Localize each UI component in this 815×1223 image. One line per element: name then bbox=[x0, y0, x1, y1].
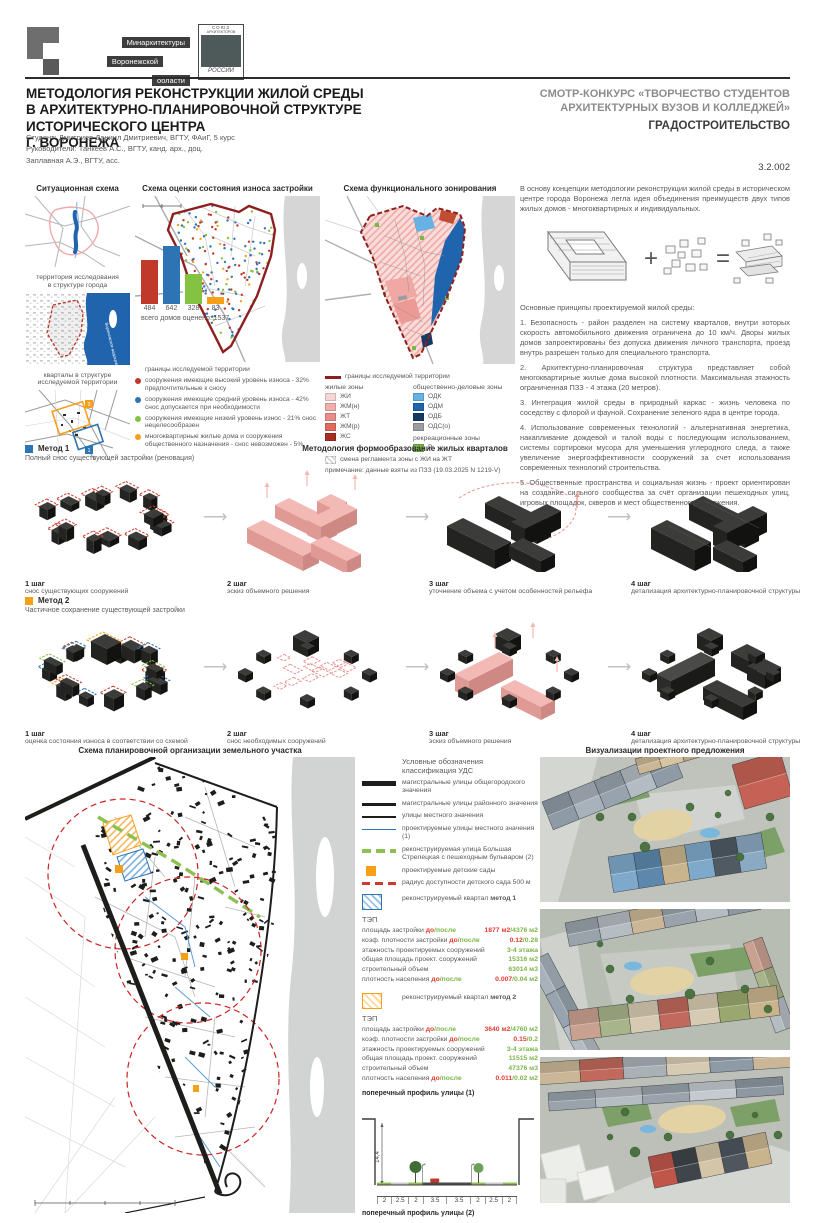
tep2-header: ТЭП bbox=[362, 1014, 538, 1023]
bar-labels: 48464232883 bbox=[141, 305, 241, 312]
tep-row: площадь застройки до/после 3640 м2/4760 … bbox=[362, 1025, 538, 1035]
step-arrow-icon: ⟶ bbox=[203, 657, 227, 677]
category-label: ГРАДОСТРОИТЕЛЬСТВО bbox=[460, 119, 790, 133]
competition-board: Минархитектуры Воронежской области СОЮЗ … bbox=[0, 0, 815, 1223]
step-diagram bbox=[429, 618, 599, 722]
step-number: 1 шаг bbox=[25, 729, 203, 738]
dimension-value: 3.5 bbox=[424, 1197, 448, 1204]
union-logo-line: АРХИТЕКТОРОВ bbox=[199, 30, 243, 34]
step-arrow-icon: ⟶ bbox=[405, 507, 429, 527]
method-step: 4 шаг детализация архитектурно-планирово… bbox=[631, 618, 809, 746]
dimension-value: 2 bbox=[377, 1197, 392, 1204]
tep-row: плотность населения до/после 0.011/0.02 … bbox=[362, 1074, 538, 1084]
title-line: В АРХИТЕКТУРНО-ПЛАНИРОВОЧНОЙ СТРУКТУРЕ И… bbox=[26, 102, 486, 135]
zone-swatch-icon bbox=[325, 393, 336, 401]
step-number: 2 шаг bbox=[227, 729, 405, 738]
step-arrow-icon: ⟶ bbox=[405, 657, 429, 677]
zone-item: ОДС(о) bbox=[413, 423, 465, 431]
tep-after-value: /4760 м2 bbox=[510, 1026, 538, 1033]
situational-column: Ситуационная схема территория исследован… bbox=[25, 184, 130, 465]
uds-text: магистральные улицы общегородского значе… bbox=[402, 779, 538, 796]
dimension-value: 2.5 bbox=[392, 1197, 409, 1204]
tep-after-value: /0.2 bbox=[527, 1036, 538, 1043]
step-diagram bbox=[631, 618, 801, 722]
tep-label: строительный объем bbox=[362, 1065, 428, 1072]
wear-bar-chart: 48464232883 всего домов оценено: 1537 bbox=[141, 244, 241, 322]
ministry-logo-text: Минархитектуры Воронежской области bbox=[80, 32, 190, 88]
union-logo-line: РОССИИ bbox=[199, 68, 243, 74]
uds-items: магистральные улицы общегородского значе… bbox=[362, 779, 538, 888]
siteplan-map-wrap bbox=[25, 757, 355, 1218]
tep-before-word: до bbox=[426, 927, 434, 934]
uds-swatch-icon bbox=[362, 848, 396, 854]
dimension-value: 2 bbox=[409, 1197, 423, 1204]
uds-text: проектируемые детские сады bbox=[402, 867, 495, 875]
tep-row: коэф. плотности застройки до/после 0.12/… bbox=[362, 936, 538, 946]
step-caption: эскиз объемного решения bbox=[227, 588, 405, 596]
architects-union-logo: СОЮЗ АРХИТЕКТОРОВ РОССИИ bbox=[198, 24, 244, 80]
tep-before-word: до bbox=[431, 976, 439, 983]
tep-row: этажность проектируемых сооружений 3-4 э… bbox=[362, 946, 538, 956]
step-caption: уточнение объема с учетом особенностей р… bbox=[429, 588, 607, 596]
tep-row: строительный объем 63014 м3 bbox=[362, 965, 538, 975]
method-step: 2 шаг снос необходимых сооружений bbox=[227, 618, 405, 746]
street-profile-2: 14,4 bbox=[362, 1219, 534, 1223]
tep-label: этажность проектируемых сооружений bbox=[362, 1046, 485, 1053]
tep-before-word: до bbox=[431, 1075, 439, 1082]
method1-square-icon bbox=[25, 445, 33, 453]
quarter1-item: реконструируемый квартал метод 1 bbox=[362, 892, 538, 910]
tep2-table: площадь застройки до/после 3640 м2/4760 … bbox=[362, 1025, 538, 1084]
situational-title: Ситуационная схема bbox=[25, 184, 130, 193]
method1-label: Метод 1 bbox=[38, 444, 69, 453]
method-step: 3 шаг уточнение объема с учетом особенно… bbox=[429, 468, 607, 596]
tep-after-word: /после bbox=[434, 1026, 456, 1033]
svg-text:14,4: 14,4 bbox=[375, 1150, 381, 1162]
tep-after-value: 3-4 этажа bbox=[507, 947, 538, 954]
tep-after-value: /0.04 м2 bbox=[512, 976, 538, 983]
author-line: Руководители: Танкеев А.С., ВГТУ, канд. … bbox=[26, 143, 426, 154]
tep-label: этажность проектируемых сооружений bbox=[362, 947, 485, 954]
tep-label: коэф. плотности застройки bbox=[362, 1036, 449, 1043]
title-line: МЕТОДОЛОГИЯ РЕКОНСТРУКЦИИ ЖИЛОЙ СРЕДЫ bbox=[26, 86, 486, 102]
competition-line: АРХИТЕКТУРНЫХ ВУЗОВ И КОЛЛЕДЖЕЙ» bbox=[460, 102, 790, 116]
uds-text: улицы местного значения bbox=[402, 812, 483, 820]
entry-code: 3.2.002 bbox=[758, 162, 790, 173]
step-number: 4 шаг bbox=[631, 729, 809, 738]
zone-item: ОДК bbox=[413, 393, 465, 401]
uds-legend-item: проектируемые улицы местного значения (1… bbox=[362, 825, 538, 842]
method-step: 3 шаг эскиз объемного решения bbox=[429, 618, 607, 746]
uds-legend-item: проектируемые детские сады bbox=[362, 867, 538, 875]
zoning-change-item: смена регламента зоны с ЖИ на ЖТ bbox=[325, 456, 515, 464]
wear-total: всего домов оценено: 1537 bbox=[141, 315, 241, 322]
render-3 bbox=[540, 1057, 790, 1203]
tep-row: этажность проектируемых сооружений 3-4 э… bbox=[362, 1045, 538, 1055]
zone-swatch-icon bbox=[413, 413, 424, 421]
step-caption: оценка состояния износа в соответствии с… bbox=[25, 738, 203, 746]
method2-steps: 1 шаг оценка состояния износа в соответс… bbox=[25, 618, 815, 746]
step-number: 4 шаг bbox=[631, 579, 809, 588]
tep-after-word: /после bbox=[458, 937, 480, 944]
zoning-map-title: Схема функционального зонирования bbox=[325, 184, 515, 193]
step-number: 2 шаг bbox=[227, 579, 405, 588]
competition-name: СМОТР-КОНКУРС «ТВОРЧЕСТВО СТУДЕНТОВ АРХИ… bbox=[460, 88, 790, 133]
wear-legend-item: сооружения имеющие средний уровень износ… bbox=[135, 396, 320, 412]
zone-code: ЖМ(н) bbox=[340, 403, 360, 410]
zoning-map bbox=[325, 196, 515, 364]
zone-code: ЖИ bbox=[340, 393, 351, 400]
authors-block: Студент: Дмитриев Даниил Дмитриевич, ВГТ… bbox=[26, 132, 426, 166]
uds-text: проектируемые улицы местного значения (1… bbox=[402, 825, 538, 842]
step-number: 3 шаг bbox=[429, 729, 607, 738]
uds-text: реконструируемая улица Большая Стрелецка… bbox=[402, 846, 538, 863]
bar bbox=[163, 246, 180, 304]
step-caption: эскиз объемного решения bbox=[429, 738, 607, 746]
tep-label: плотность населения bbox=[362, 1075, 431, 1082]
tep1-header: ТЭП bbox=[362, 915, 538, 924]
tep-after-value: /4376 м2 bbox=[510, 927, 538, 934]
zone-code: ЖС bbox=[340, 433, 351, 440]
tep-before-value: 0.15 bbox=[513, 1036, 526, 1043]
step-arrow-icon: ⟶ bbox=[607, 507, 631, 527]
step-arrow-icon: ⟶ bbox=[203, 507, 227, 527]
legend-swatch-icon bbox=[135, 416, 141, 422]
step-caption: снос существующих сооружений bbox=[25, 588, 203, 596]
legend-text: смена регламента зоны с ЖИ на ЖТ bbox=[340, 456, 452, 463]
tep1-table: площадь застройки до/после 1877 м2/4376 … bbox=[362, 926, 538, 985]
zone-item: ЖТ bbox=[325, 413, 413, 421]
method2-header: Метод 2 Частичное сохранение существующе… bbox=[25, 596, 305, 614]
uds-header-1: Условные обозначения bbox=[402, 757, 538, 766]
uds-legend-item: радиус доступности детского сада 500 м bbox=[362, 879, 538, 887]
tep-before-value: 0.011 bbox=[496, 1075, 513, 1082]
step-diagram bbox=[429, 468, 599, 572]
siteplan-map bbox=[25, 757, 355, 1213]
zone-swatch-icon bbox=[325, 423, 336, 431]
bar bbox=[141, 260, 158, 304]
step-diagram bbox=[227, 468, 397, 572]
zone-swatch-icon bbox=[413, 423, 424, 431]
tep-after-value: 63014 м3 bbox=[508, 966, 538, 973]
boundary-line-icon bbox=[325, 376, 341, 379]
step-diagram bbox=[25, 468, 195, 572]
bar bbox=[207, 297, 224, 304]
zone-code: ОДМ bbox=[428, 403, 443, 410]
render-2 bbox=[540, 909, 790, 1050]
ministry-logo-icon bbox=[25, 25, 75, 75]
profile1-dimensions: 22.523.53.522.52 bbox=[377, 1196, 517, 1204]
ministry-logo-line: Минархитектуры bbox=[122, 37, 190, 48]
renders-title: Визуализации проектного предложения bbox=[540, 746, 790, 755]
legend-text: сооружения имеющие высокий уровень износ… bbox=[145, 377, 320, 393]
principle-3: 3. Интеграция жилой среды в природный ка… bbox=[520, 398, 790, 418]
legend-swatch-icon bbox=[135, 434, 141, 440]
tep-row: общая площадь проект. сооружений 15316 м… bbox=[362, 955, 538, 965]
zone-code: ОДК bbox=[428, 393, 441, 400]
legend-text: границы исследуемой территории bbox=[145, 366, 250, 374]
wear-section: Схема оценки состояния износа застройки bbox=[135, 184, 320, 452]
situational-map bbox=[25, 196, 130, 267]
concept-intro: В основу концепции методологии реконстру… bbox=[520, 184, 790, 214]
zone-swatch-icon bbox=[325, 413, 336, 421]
tep-after-value: 15316 м2 bbox=[508, 956, 538, 963]
bar-value: 484 bbox=[141, 305, 158, 312]
city-structure-map: Воронежское водохранилище bbox=[25, 293, 130, 365]
render-1 bbox=[540, 757, 790, 902]
step-caption: детализация архитектурно-планировочной с… bbox=[631, 588, 809, 596]
zone-code: ЖМ(р) bbox=[340, 423, 360, 430]
tep-after-word: /после bbox=[458, 1036, 480, 1043]
wear-legend-item: сооружения имеющие высокий уровень износ… bbox=[135, 377, 320, 393]
uds-legend-item: реконструируемая улица Большая Стрелецка… bbox=[362, 846, 538, 863]
legend-swatch-icon bbox=[135, 367, 141, 373]
step-number: 1 шаг bbox=[25, 579, 203, 588]
principles-header: Основные принципы проектируемой жилой ср… bbox=[520, 303, 790, 313]
concept-diagram: + = bbox=[520, 218, 790, 294]
step-caption: снос необходимых сооружений bbox=[227, 738, 405, 746]
method2-marker: 2 bbox=[87, 402, 90, 408]
tep-before-word: до bbox=[426, 1026, 434, 1033]
uds-swatch-icon bbox=[362, 781, 396, 787]
profile1-title: поперечный профиль улицы (1) bbox=[362, 1090, 538, 1097]
tep-after-value: /0.02 м2 bbox=[512, 1075, 538, 1082]
legend-swatch-icon bbox=[135, 397, 141, 403]
tep-after-value: 11515 м2 bbox=[509, 1055, 538, 1062]
wear-legend-item: сооружения имеющие низкий уровень износ … bbox=[135, 415, 320, 431]
change-swatch-icon bbox=[325, 456, 336, 464]
quarter2-text: реконструируемый квартал bbox=[402, 994, 488, 1001]
zone-swatch-icon bbox=[325, 433, 336, 441]
tep-before-word: до bbox=[449, 1036, 457, 1043]
step-diagram bbox=[227, 618, 397, 722]
zone-swatch-icon bbox=[413, 393, 424, 401]
uds-header-2: классификация УДС bbox=[402, 766, 538, 775]
author-line: Заплавная А.Э., ВГТУ, асс. bbox=[26, 155, 426, 166]
tep-after-value: 47376 м3 bbox=[508, 1065, 538, 1072]
tep-after-value: /0.28 bbox=[523, 937, 538, 944]
uds-legend-item: магистральные улицы районного значения bbox=[362, 800, 538, 808]
bar-value: 328 bbox=[185, 305, 202, 312]
situational-caption-1: территория исследования в структуре горо… bbox=[25, 274, 130, 290]
siteplan-title: Схема планировочной организации земельно… bbox=[25, 746, 355, 755]
group-header: рекреационные зоны bbox=[413, 435, 515, 442]
bar bbox=[185, 274, 202, 304]
uds-text: магистральные улицы районного значения bbox=[402, 800, 538, 808]
wear-map-title: Схема оценки состояния износа застройки bbox=[135, 184, 320, 193]
method2-desc: Частичное сохранение существующей застро… bbox=[25, 607, 305, 614]
zone-code: ОДБ bbox=[428, 413, 442, 420]
street-profile-1: 14,4 bbox=[362, 1099, 534, 1191]
plus-icon: + bbox=[644, 245, 658, 272]
tep-before-word: до bbox=[449, 937, 457, 944]
tep-before-value: 0.007 bbox=[495, 976, 512, 983]
zone-item: ОДМ bbox=[413, 403, 465, 411]
uds-swatch-icon bbox=[362, 881, 396, 887]
uds-legend-item: улицы местного значения bbox=[362, 812, 538, 820]
tep-before-value: 0.12 bbox=[510, 937, 523, 944]
zone-item: ЖИ bbox=[325, 393, 413, 401]
renders-column bbox=[540, 757, 790, 1210]
principle-2: 2. Архитектурно-планировочная структура … bbox=[520, 363, 790, 393]
method-step: 2 шаг эскиз объемного решения bbox=[227, 468, 405, 596]
quarter2-item: реконструируемый квартал метод 2 bbox=[362, 991, 538, 1009]
uds-swatch-icon bbox=[362, 827, 396, 833]
legend-text: сооружения имеющие средний уровень износ… bbox=[145, 396, 320, 412]
principle-1: 1. Безопасность - район разделен на сист… bbox=[520, 318, 790, 358]
zone-code: ОДС(о) bbox=[428, 423, 450, 430]
tep-label: общая площадь проект. сооружений bbox=[362, 956, 477, 963]
tep-label: коэф. плотности застройки bbox=[362, 937, 449, 944]
situational-caption-2: кварталы в структуре исследуемой террито… bbox=[25, 372, 130, 388]
method-step: 1 шаг оценка состояния износа в соответс… bbox=[25, 618, 203, 746]
method-step: 4 шаг детализация архитектурно-планирово… bbox=[631, 468, 809, 596]
zone-item: ЖС bbox=[325, 433, 413, 441]
tep-row: коэф. плотности застройки до/после 0.15/… bbox=[362, 1035, 538, 1045]
method-step: 1 шаг снос существующих сооружений bbox=[25, 468, 203, 596]
zone-item: ЖМ(н) bbox=[325, 403, 413, 411]
uds-swatch-icon bbox=[362, 814, 396, 820]
methods-board-title: Методология формообразование жилых кварт… bbox=[240, 444, 570, 453]
quarter1-bold: метод 1 bbox=[490, 895, 516, 902]
step-arrow-icon: ⟶ bbox=[607, 657, 631, 677]
uds-text: радиус доступности детского сада 500 м bbox=[402, 879, 531, 887]
tep-row: строительный объем 47376 м3 bbox=[362, 1064, 538, 1074]
method2-square-icon bbox=[25, 597, 33, 605]
legend-swatch-icon bbox=[135, 378, 141, 384]
zone-item: ЖМ(р) bbox=[325, 423, 413, 431]
step-caption: детализация архитектурно-планировочной с… bbox=[631, 738, 809, 746]
uds-legend-column: Условные обозначения классификация УДС м… bbox=[362, 757, 538, 1223]
quarter1-text: реконструируемый квартал bbox=[402, 895, 488, 902]
equals-icon: = bbox=[716, 245, 730, 272]
bar-value: 642 bbox=[163, 305, 180, 312]
group-header: жилые зоны bbox=[325, 384, 413, 391]
tep-row: площадь застройки до/после 1877 м2/4376 … bbox=[362, 926, 538, 936]
quarter2-bold: метод 2 bbox=[490, 994, 516, 1001]
zone-item: ОДБ bbox=[413, 413, 465, 421]
tep-after-word: /после bbox=[434, 927, 456, 934]
method2-hatch-icon bbox=[362, 993, 396, 1009]
method1-hatch-icon bbox=[362, 894, 396, 910]
wear-map-wrap: 48464232883 всего домов оценено: 1537 bbox=[135, 196, 320, 362]
tep-before-value: 3640 м2 bbox=[484, 1026, 510, 1033]
tep-row: плотность населения до/после 0.007/0.04 … bbox=[362, 975, 538, 985]
zoning-section: Схема функционального зонирования bbox=[325, 184, 515, 474]
wear-legend: границы исследуемой территории сооружени… bbox=[135, 366, 320, 449]
profile2-title: поперечный профиль улицы (2) bbox=[362, 1210, 538, 1217]
step-diagram bbox=[25, 618, 195, 722]
dimension-value: 2.5 bbox=[486, 1197, 503, 1204]
tep-after-word: /после bbox=[440, 976, 462, 983]
tep-label: строительный объем bbox=[362, 966, 428, 973]
tep-label: общая площадь проект. сооружений bbox=[362, 1055, 477, 1062]
dimension-value: 2 bbox=[503, 1197, 517, 1204]
competition-line: СМОТР-КОНКУРС «ТВОРЧЕСТВО СТУДЕНТОВ bbox=[460, 88, 790, 102]
group-header: общественно-деловые зоны bbox=[413, 384, 515, 391]
step-diagram bbox=[631, 468, 801, 572]
legend-text: сооружения имеющие низкий уровень износ … bbox=[145, 415, 320, 431]
method1-desc: Полный снос существующей застройки (рено… bbox=[25, 455, 305, 462]
uds-legend-item: магистральные улицы общегородского значе… bbox=[362, 779, 538, 796]
header-divider bbox=[25, 77, 790, 79]
legend-text: границы исследуемой территории bbox=[345, 373, 450, 381]
tep-label: площадь застройки bbox=[362, 1026, 426, 1033]
dimension-value: 2 bbox=[471, 1197, 485, 1204]
tep-label: площадь застройки bbox=[362, 927, 426, 934]
author-line: Студент: Дмитриев Даниил Дмитриевич, ВГТ… bbox=[26, 132, 426, 143]
uds-swatch-icon bbox=[362, 802, 396, 808]
bar-value: 83 bbox=[207, 305, 224, 312]
tep-row: общая площадь проект. сооружений 11515 м… bbox=[362, 1054, 538, 1064]
concept-column: В основу концепции методологии реконстру… bbox=[520, 184, 790, 508]
zone-swatch-icon bbox=[413, 403, 424, 411]
wear-legend-item: границы исследуемой территории bbox=[135, 366, 320, 374]
tep-after-value: 3-4 этажа bbox=[507, 1046, 538, 1053]
uds-swatch-icon bbox=[362, 869, 396, 875]
tep-after-word: /после bbox=[440, 1075, 462, 1082]
ministry-logo-line: Воронежской bbox=[107, 56, 163, 67]
zoning-boundary-item: границы исследуемой территории bbox=[325, 373, 515, 381]
method2-label: Метод 2 bbox=[38, 596, 69, 605]
bar-group bbox=[141, 244, 241, 304]
tep-label: плотность населения bbox=[362, 976, 431, 983]
dimension-value: 3.5 bbox=[447, 1197, 471, 1204]
method1-steps: 1 шаг снос существующих сооружений ⟶ 2 ш… bbox=[25, 468, 815, 596]
step-number: 3 шаг bbox=[429, 579, 607, 588]
zone-code: ЖТ bbox=[340, 413, 350, 420]
tep-before-value: 1877 м2 bbox=[484, 927, 510, 934]
zone-swatch-icon bbox=[325, 403, 336, 411]
